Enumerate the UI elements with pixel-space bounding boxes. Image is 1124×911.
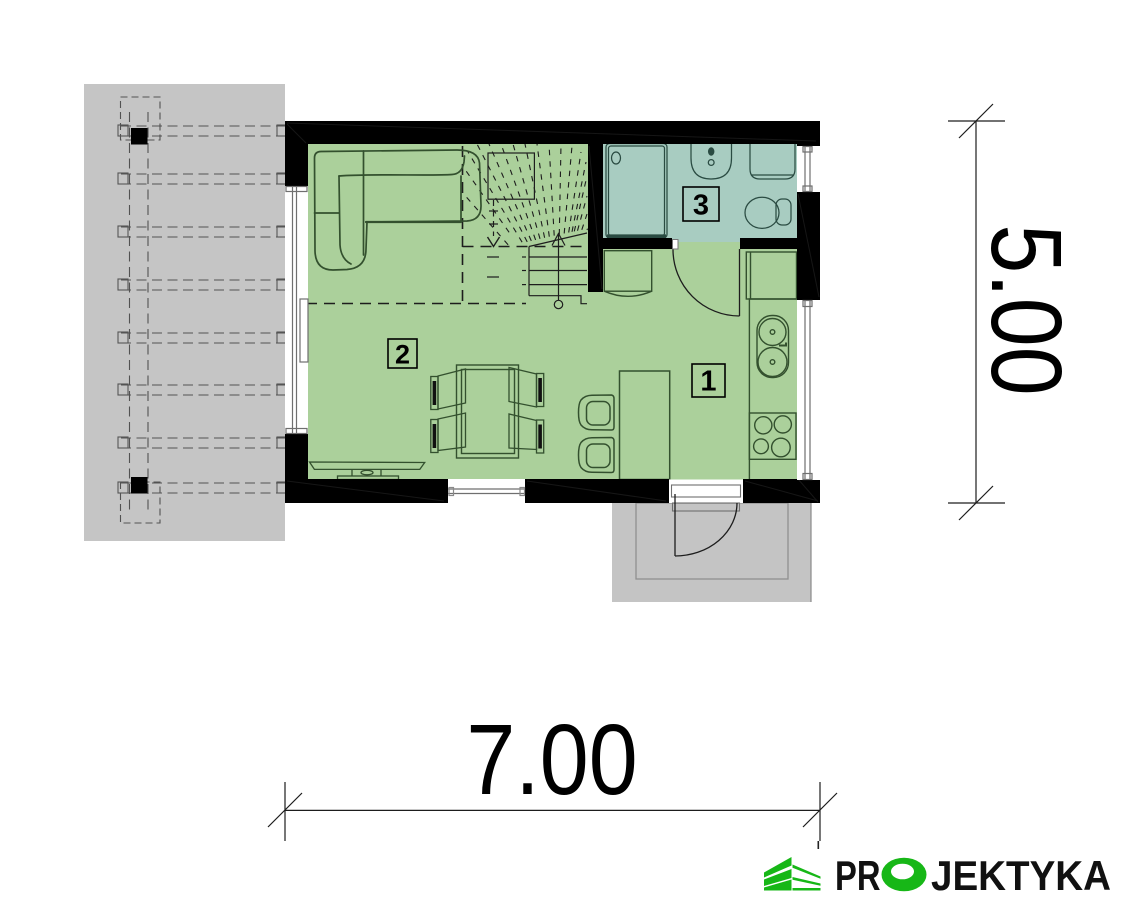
svg-text:5.00: 5.00 [971, 224, 1082, 395]
svg-text:3: 3 [693, 190, 709, 222]
svg-text:JEKTYKA: JEKTYKA [931, 852, 1111, 899]
svg-text:PR: PR [835, 852, 881, 899]
svg-text:2: 2 [395, 340, 410, 370]
svg-text:7.00: 7.00 [466, 704, 637, 815]
svg-text:1: 1 [700, 366, 716, 398]
